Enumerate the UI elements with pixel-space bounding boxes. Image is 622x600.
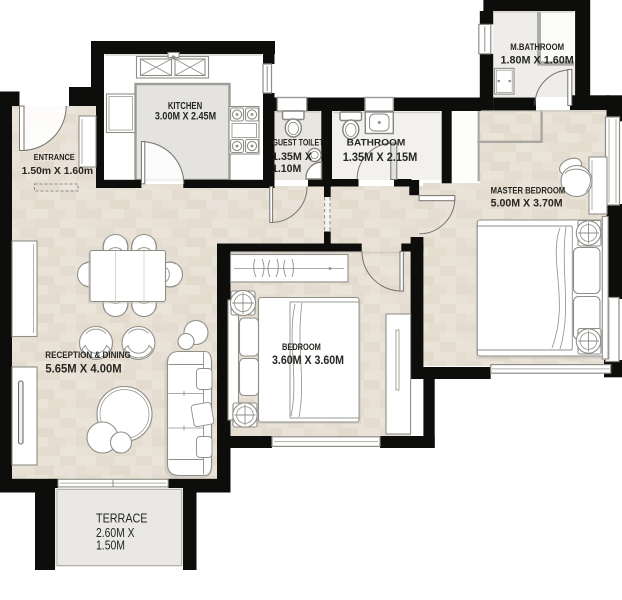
svg-text:GUEST TOILET: GUEST TOILET (273, 137, 324, 147)
svg-text:1.80M X 1.60M: 1.80M X 1.60M (500, 55, 573, 67)
svg-text:1.10M: 1.10M (272, 163, 301, 175)
svg-text:3.60M X 3.60M: 3.60M X 3.60M (272, 355, 344, 367)
svg-text:RECEPTION & DINING: RECEPTION & DINING (45, 350, 130, 361)
svg-text:3.00M X 2.45M: 3.00M X 2.45M (155, 111, 216, 123)
svg-text:ENTRANCE: ENTRANCE (34, 153, 76, 162)
svg-text:BEDROOM: BEDROOM (282, 342, 321, 353)
svg-text:1.50M: 1.50M (96, 538, 125, 552)
svg-text:M.BATHROOM: M.BATHROOM (510, 42, 564, 52)
svg-text:1.35M X: 1.35M X (272, 151, 313, 163)
svg-text:TERRACE: TERRACE (96, 512, 148, 526)
svg-text:MASTER BEDROOM: MASTER BEDROOM (491, 185, 566, 196)
svg-text:5.65M X 4.00M: 5.65M X 4.00M (45, 364, 121, 376)
svg-text:1.50m X 1.60m: 1.50m X 1.60m (22, 166, 94, 177)
svg-text:1.35M X 2.15M: 1.35M X 2.15M (343, 152, 418, 164)
svg-text:5.00M X 3.70M: 5.00M X 3.70M (491, 198, 563, 210)
svg-text:BATHROOM: BATHROOM (347, 137, 406, 147)
